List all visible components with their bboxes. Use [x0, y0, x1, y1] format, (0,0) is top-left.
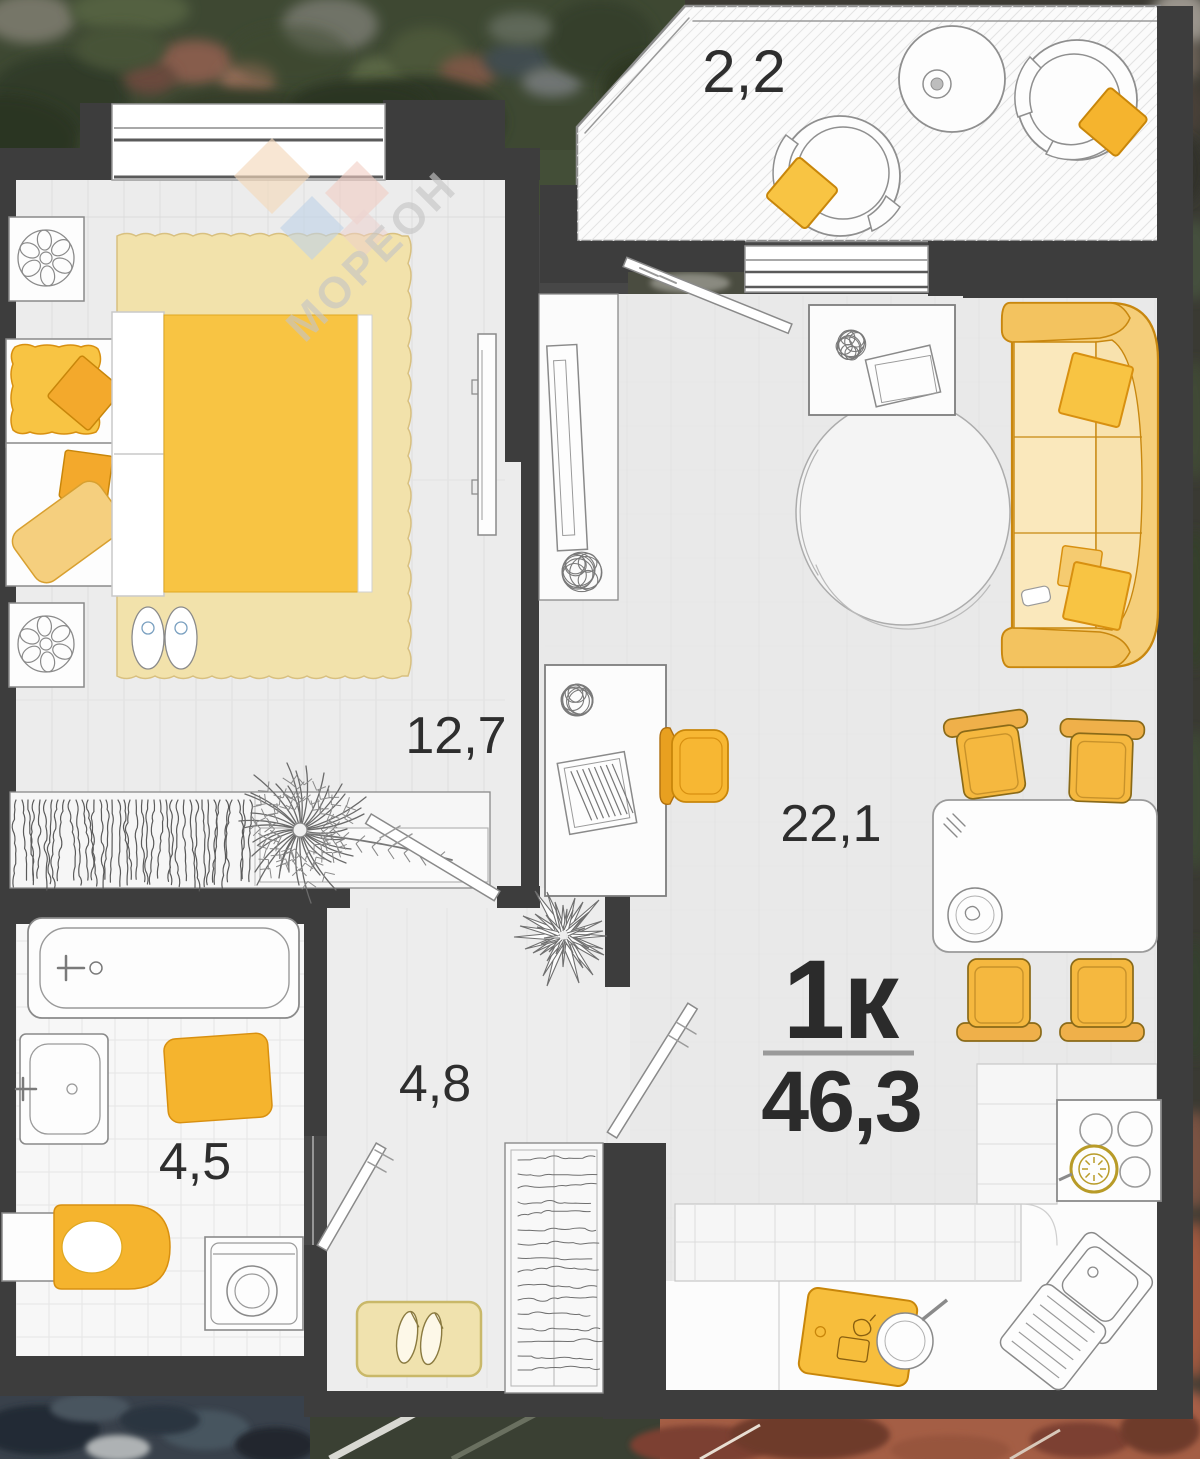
svg-text:12,7: 12,7: [405, 707, 506, 765]
svg-text:4,8: 4,8: [399, 1055, 471, 1113]
svg-text:22,1: 22,1: [780, 795, 881, 853]
svg-text:1к: 1к: [783, 937, 900, 1062]
svg-text:4,5: 4,5: [159, 1133, 231, 1191]
svg-text:2,2: 2,2: [702, 38, 785, 105]
svg-text:46,3: 46,3: [761, 1054, 920, 1150]
